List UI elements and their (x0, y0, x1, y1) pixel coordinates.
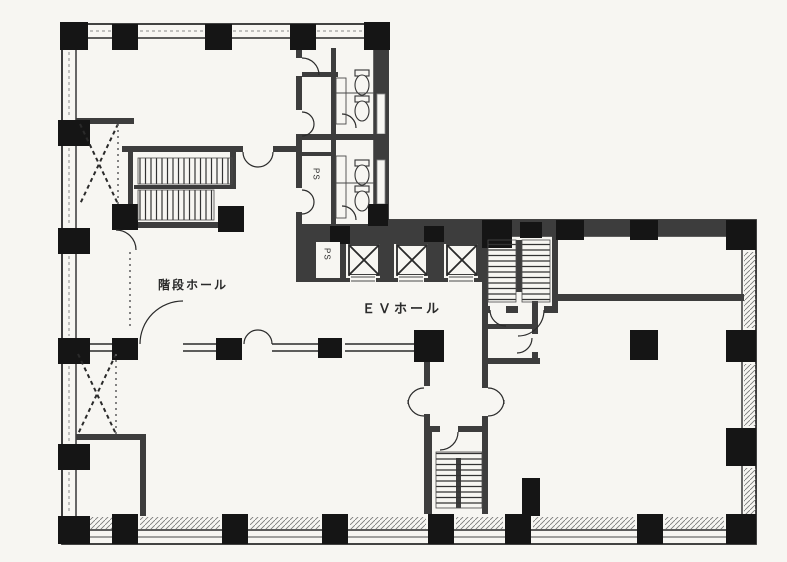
floor-plan-page: 階段ホール ＥＶホール PS PS (0, 0, 787, 562)
toilet-icon (355, 160, 369, 185)
staircase-lower (436, 452, 482, 508)
toilet-icon (355, 96, 369, 121)
elevator-icon (444, 244, 478, 283)
floor-plan: 階段ホール ＥＶホール PS PS (0, 0, 787, 562)
toilet-icon (355, 70, 369, 95)
elevator-icon (394, 244, 428, 283)
stair-hall-label: 階段ホール (158, 277, 228, 292)
pipe-shaft-label: PS (323, 248, 332, 261)
ev-hall-label: ＥＶホール (362, 301, 442, 316)
toilet-icon (355, 186, 369, 211)
pipe-shaft-label: PS (312, 168, 321, 181)
elevator-icon (346, 244, 380, 283)
